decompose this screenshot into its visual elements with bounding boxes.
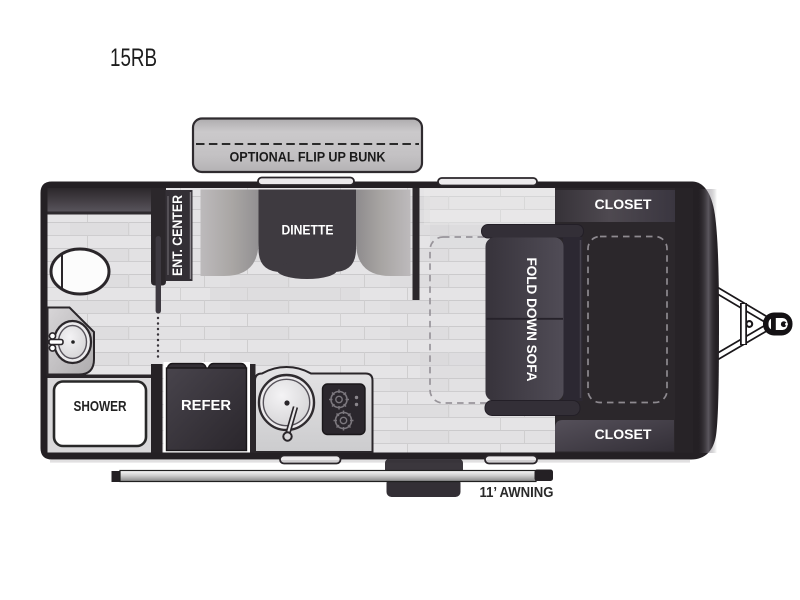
svg-text:11’ AWNING: 11’ AWNING — [480, 485, 554, 501]
svg-text:SHOWER: SHOWER — [74, 398, 127, 415]
svg-text:CLOSET: CLOSET — [595, 426, 652, 442]
svg-text:15RB: 15RB — [110, 44, 157, 72]
svg-text:ENT. CENTER: ENT. CENTER — [170, 195, 185, 276]
svg-text:OPTIONAL FLIP UP BUNK: OPTIONAL FLIP UP BUNK — [230, 150, 386, 165]
svg-text:FOLD DOWN SOFA: FOLD DOWN SOFA — [524, 258, 539, 382]
svg-text:CLOSET: CLOSET — [595, 196, 652, 212]
svg-text:DINETTE: DINETTE — [282, 223, 334, 238]
svg-text:REFER: REFER — [181, 397, 231, 414]
